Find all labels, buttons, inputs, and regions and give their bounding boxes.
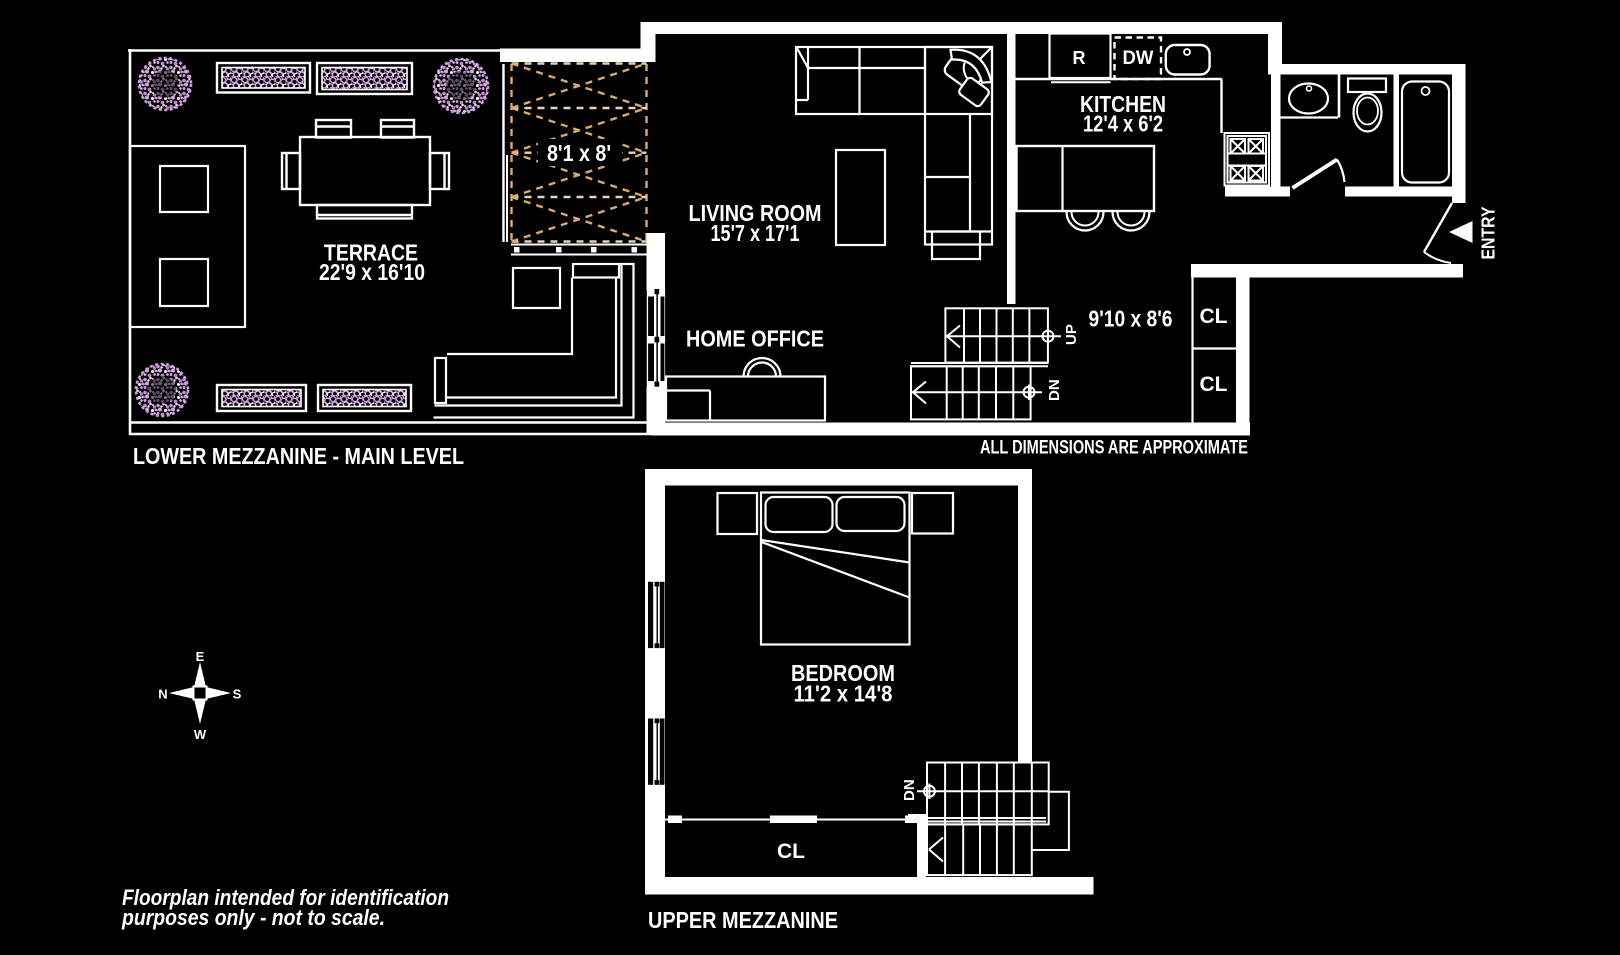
svg-text:R: R xyxy=(1073,48,1086,68)
svg-text:15'7 x 17'1: 15'7 x 17'1 xyxy=(711,220,800,246)
svg-text:CL: CL xyxy=(1200,305,1228,328)
svg-text:UPPER MEZZANINE: UPPER MEZZANINE xyxy=(648,907,838,933)
svg-text:ALL DIMENSIONS ARE APPROXIMATE: ALL DIMENSIONS ARE APPROXIMATE xyxy=(980,438,1248,459)
svg-text:purposes only - not to scale.: purposes only - not to scale. xyxy=(121,905,385,930)
svg-text:9'10 x 8'6: 9'10 x 8'6 xyxy=(1089,306,1173,332)
svg-text:DN: DN xyxy=(901,779,918,801)
svg-text:UP: UP xyxy=(1063,324,1080,345)
svg-text:E: E xyxy=(196,649,205,664)
svg-text:N: N xyxy=(158,687,167,702)
svg-text:DN: DN xyxy=(1046,379,1063,401)
svg-text:12'4 x 6'2: 12'4 x 6'2 xyxy=(1083,111,1163,137)
svg-text:W: W xyxy=(194,727,207,742)
svg-text:DW: DW xyxy=(1123,48,1154,69)
svg-text:ENTRY: ENTRY xyxy=(1478,206,1499,260)
svg-text:8'1 x 8': 8'1 x 8' xyxy=(547,140,611,166)
svg-text:LOWER MEZZANINE - MAIN LEVEL: LOWER MEZZANINE - MAIN LEVEL xyxy=(133,443,464,469)
svg-text:HOME OFFICE: HOME OFFICE xyxy=(686,326,824,352)
svg-text:11'2 x 14'8: 11'2 x 14'8 xyxy=(794,681,893,707)
svg-text:22'9 x 16'10: 22'9 x 16'10 xyxy=(319,259,425,285)
svg-text:CL: CL xyxy=(1200,373,1228,396)
svg-text:S: S xyxy=(233,687,242,702)
svg-text:CL: CL xyxy=(777,840,805,863)
